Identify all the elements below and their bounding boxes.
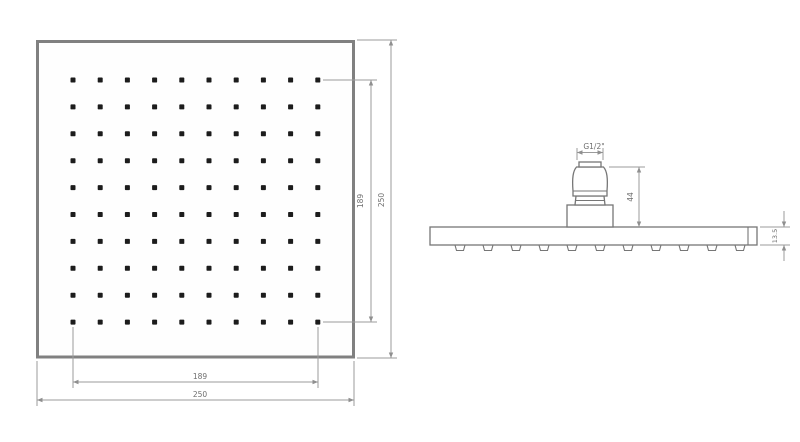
nozzle-dot	[98, 185, 103, 190]
nozzle-dot	[71, 158, 76, 163]
nozzle-dot	[179, 293, 184, 298]
nozzle-dot	[71, 104, 76, 109]
side-plate	[430, 227, 757, 245]
nozzle-dot	[207, 131, 212, 136]
nozzle-dot	[179, 78, 184, 83]
nozzle-dot	[152, 131, 157, 136]
nozzle-dot	[261, 185, 266, 190]
nozzle-dot	[98, 158, 103, 163]
nozzle-dot	[179, 158, 184, 163]
nozzle-dot	[234, 78, 239, 83]
nozzle-dot	[98, 212, 103, 217]
nozzle-dot	[207, 320, 212, 325]
nozzle-dot	[71, 131, 76, 136]
nozzle-dot	[288, 320, 293, 325]
nozzle-dot	[261, 131, 266, 136]
nozzle-dot	[152, 320, 157, 325]
nozzle-dot	[234, 158, 239, 163]
dim-label-plate-thickness: 13.5	[771, 229, 779, 243]
nozzle-dot	[261, 104, 266, 109]
dim-label-connector-height: 44	[626, 192, 635, 202]
nozzle-dot	[179, 131, 184, 136]
nozzle-dot	[152, 212, 157, 217]
nozzle-dot	[207, 104, 212, 109]
nozzle-dot	[125, 131, 130, 136]
nozzle-dot	[98, 78, 103, 83]
nozzle-dot	[288, 185, 293, 190]
nozzle-dot	[315, 131, 320, 136]
connector-body	[573, 167, 608, 196]
nozzle-dot	[207, 239, 212, 244]
nozzle-dot	[71, 239, 76, 244]
dim-label-overall-horizontal: 250	[193, 390, 208, 399]
nozzle-dot	[261, 212, 266, 217]
nozzle-dot	[207, 78, 212, 83]
nozzle-dot	[315, 158, 320, 163]
nozzle-dot	[125, 104, 130, 109]
nozzle-dot	[288, 266, 293, 271]
side-nozzle-bump	[595, 245, 605, 251]
side-nozzle-bump	[539, 245, 549, 251]
side-nozzle-bump	[679, 245, 689, 251]
nozzle-dot	[152, 239, 157, 244]
nozzle-dot	[315, 104, 320, 109]
nozzle-dot	[207, 293, 212, 298]
side-nozzle-bump	[651, 245, 661, 251]
nozzle-dot	[71, 293, 76, 298]
nozzle-dot	[152, 78, 157, 83]
side-nozzle-bump	[623, 245, 633, 251]
nozzle-dot	[207, 158, 212, 163]
nozzle-dot	[125, 158, 130, 163]
dim-label-hole-span-horizontal: 189	[193, 372, 208, 381]
thread-size-label: G1/2"	[583, 142, 604, 151]
nozzle-dot	[234, 266, 239, 271]
nozzle-dot	[152, 158, 157, 163]
nozzle-dot	[125, 185, 130, 190]
nozzle-dot	[207, 266, 212, 271]
nozzle-dot	[125, 239, 130, 244]
nozzle-dot	[288, 131, 293, 136]
nozzle-dot	[125, 266, 130, 271]
nozzle-dot	[98, 320, 103, 325]
nozzle-dot	[179, 212, 184, 217]
nozzle-dot	[234, 131, 239, 136]
side-nozzle-bump	[735, 245, 745, 251]
nozzle-dot	[261, 239, 266, 244]
nozzle-dot	[288, 293, 293, 298]
side-view: G1/2" 44 13.5	[430, 142, 790, 261]
front-view: 189 250 189 250	[37, 40, 397, 406]
nozzle-dot	[125, 78, 130, 83]
nozzle-dot	[125, 212, 130, 217]
nozzle-dot	[98, 131, 103, 136]
nozzle-dot	[234, 212, 239, 217]
nozzle-dot	[315, 266, 320, 271]
nozzle-dot	[207, 212, 212, 217]
dim-label-overall-vertical: 250	[377, 193, 386, 208]
nozzle-dot	[315, 293, 320, 298]
side-nozzle-bump	[567, 245, 577, 251]
nozzle-dot	[234, 104, 239, 109]
nozzle-dot	[315, 185, 320, 190]
side-nozzle-row	[455, 245, 745, 251]
nozzle-dot	[71, 78, 76, 83]
nozzle-dot	[261, 320, 266, 325]
nozzle-dot	[261, 78, 266, 83]
nozzle-dot	[179, 104, 184, 109]
nozzle-dot	[98, 293, 103, 298]
technical-drawing-page: 189 250 189 250 G1/2"	[0, 0, 800, 442]
nozzle-dot	[71, 212, 76, 217]
nozzle-dot	[152, 293, 157, 298]
nozzle-dot	[207, 185, 212, 190]
nozzle-dot	[152, 185, 157, 190]
nozzle-dot	[125, 293, 130, 298]
nozzle-dot	[261, 266, 266, 271]
nozzle-dot	[234, 185, 239, 190]
nozzle-dot	[179, 266, 184, 271]
nozzle-dot	[152, 266, 157, 271]
connector-thread-cap	[579, 162, 601, 167]
nozzle-dot	[288, 239, 293, 244]
nozzle-dot	[152, 104, 157, 109]
nozzle-dot	[179, 185, 184, 190]
nozzle-dot	[288, 104, 293, 109]
nozzle-dot	[315, 239, 320, 244]
nozzle-dot	[288, 78, 293, 83]
nozzle-dot	[179, 239, 184, 244]
nozzle-dot	[315, 212, 320, 217]
faceplate-outline	[38, 42, 354, 358]
nozzle-dot	[234, 239, 239, 244]
nozzle-dot	[261, 293, 266, 298]
dim-label-hole-span-vertical: 189	[356, 194, 365, 209]
nozzle-dot	[98, 266, 103, 271]
nozzle-dot	[71, 320, 76, 325]
nozzle-dot	[71, 266, 76, 271]
nozzle-dot	[288, 212, 293, 217]
nozzle-dot	[125, 320, 130, 325]
side-nozzle-bump	[511, 245, 521, 251]
nozzle-dot	[234, 320, 239, 325]
connector-base-block	[567, 205, 613, 227]
nozzle-dot	[234, 293, 239, 298]
nozzle-dot	[315, 320, 320, 325]
nozzle-dot	[98, 104, 103, 109]
side-nozzle-bump	[483, 245, 493, 251]
nozzle-dot	[179, 320, 184, 325]
nozzle-dot	[288, 158, 293, 163]
side-nozzle-bump	[707, 245, 717, 251]
nozzle-dot	[261, 158, 266, 163]
nozzle-dot	[98, 239, 103, 244]
nozzle-dot	[315, 78, 320, 83]
nozzle-dot	[71, 185, 76, 190]
side-nozzle-bump	[455, 245, 465, 251]
shower-head-drawing: 189 250 189 250 G1/2"	[0, 0, 800, 442]
